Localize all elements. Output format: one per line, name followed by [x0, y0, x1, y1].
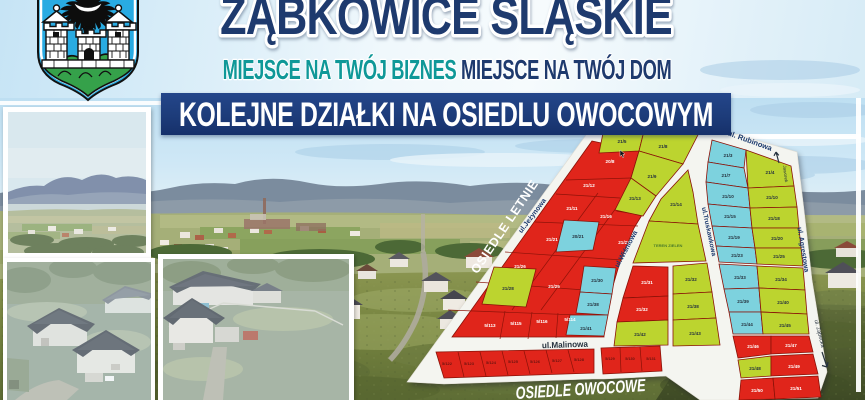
svg-text:21/38: 21/38	[687, 304, 699, 309]
svg-text:21/51: 21/51	[790, 386, 802, 391]
svg-text:5/114: 5/114	[564, 317, 576, 322]
svg-text:21/28: 21/28	[502, 286, 514, 291]
svg-text:5/115: 5/115	[510, 321, 522, 326]
svg-text:21/42: 21/42	[634, 332, 646, 337]
svg-text:5/126: 5/126	[530, 359, 541, 364]
svg-text:5/131: 5/131	[646, 357, 656, 361]
svg-text:21/50: 21/50	[751, 388, 763, 393]
svg-text:21/45: 21/45	[779, 323, 791, 328]
svg-text:20/8: 20/8	[606, 159, 615, 164]
svg-text:21/46: 21/46	[747, 344, 759, 349]
svg-text:5/123: 5/123	[464, 361, 475, 366]
svg-text:21/41: 21/41	[580, 326, 592, 331]
svg-text:5/116: 5/116	[536, 319, 548, 324]
svg-text:MIEJSCE NA TWÓJ BIZNES MIEJSCE: MIEJSCE NA TWÓJ BIZNES MIEJSCE NA TWÓJ D…	[223, 53, 672, 85]
svg-text:21/34: 21/34	[775, 277, 787, 282]
svg-text:21/3: 21/3	[724, 153, 733, 158]
svg-text:21/26: 21/26	[514, 264, 526, 269]
svg-text:21/7: 21/7	[722, 173, 731, 178]
svg-text:21/12: 21/12	[583, 183, 595, 188]
svg-text:21/32: 21/32	[636, 307, 648, 312]
svg-text:21/39: 21/39	[737, 299, 749, 304]
svg-text:21/20: 21/20	[771, 236, 783, 241]
svg-text:21/8: 21/8	[659, 144, 668, 149]
svg-text:21/18: 21/18	[768, 216, 780, 221]
svg-text:21/14: 21/14	[670, 202, 682, 207]
svg-text:21/16: 21/16	[600, 214, 612, 219]
svg-text:21/49: 21/49	[788, 364, 800, 369]
svg-text:5/122: 5/122	[442, 361, 453, 366]
svg-text:21/4: 21/4	[766, 170, 775, 175]
svg-text:21/9: 21/9	[648, 174, 657, 179]
svg-text:5/113: 5/113	[484, 323, 496, 328]
svg-text:21/10: 21/10	[766, 195, 778, 200]
svg-text:21/30: 21/30	[591, 278, 603, 283]
svg-text:5/127: 5/127	[552, 358, 563, 363]
svg-text:ul.Malinowa: ul.Malinowa	[542, 339, 589, 351]
svg-text:21/19: 21/19	[728, 235, 740, 240]
svg-text:5/124: 5/124	[486, 360, 497, 365]
svg-text:21/25: 21/25	[548, 284, 560, 289]
svg-text:5/125: 5/125	[508, 359, 519, 364]
svg-text:21/13: 21/13	[629, 196, 641, 201]
svg-text:ZĄBKOWICE ŚLĄSKIE: ZĄBKOWICE ŚLĄSKIE	[220, 0, 672, 46]
svg-text:21/43: 21/43	[689, 331, 701, 336]
svg-text:21/23: 21/23	[731, 253, 743, 258]
svg-text:21/44: 21/44	[741, 322, 753, 327]
svg-text:21/48: 21/48	[749, 366, 761, 371]
svg-text:21/47: 21/47	[785, 343, 797, 348]
svg-text:21/11: 21/11	[566, 206, 578, 211]
svg-text:KOLEJNE DZIAŁKI NA OSIEDLU OWO: KOLEJNE DZIAŁKI NA OSIEDLU OWOCOWYM	[179, 96, 713, 134]
svg-text:5/130: 5/130	[625, 357, 635, 361]
svg-text:TEREN ZIELEN: TEREN ZIELEN	[654, 243, 683, 248]
svg-text:5/128: 5/128	[574, 357, 585, 362]
svg-text:21/15: 21/15	[724, 214, 736, 219]
svg-text:20/21: 20/21	[572, 234, 584, 239]
svg-text:21/31: 21/31	[641, 280, 653, 285]
svg-text:21/38: 21/38	[587, 302, 599, 307]
svg-text:21/21: 21/21	[546, 237, 558, 242]
svg-text:21/32: 21/32	[685, 277, 697, 282]
svg-text:21/25: 21/25	[773, 254, 785, 259]
svg-text:21/33: 21/33	[734, 275, 746, 280]
svg-text:21/5: 21/5	[618, 139, 627, 144]
svg-text:21/10: 21/10	[722, 194, 734, 199]
svg-text:5/129: 5/129	[605, 357, 615, 361]
svg-text:21/40: 21/40	[777, 300, 789, 305]
